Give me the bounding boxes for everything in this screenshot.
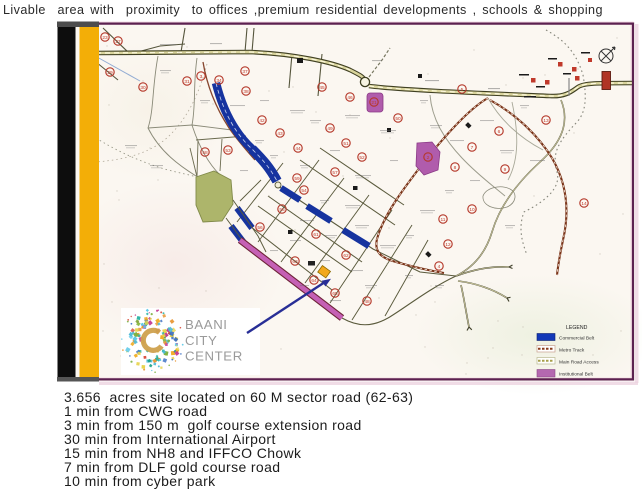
svg-text:45: 45 — [319, 85, 325, 91]
svg-text:Commercial Belt: Commercial Belt — [559, 336, 595, 342]
svg-text:2: 2 — [427, 155, 430, 161]
svg-text:14: 14 — [581, 201, 587, 207]
svg-text:12: 12 — [445, 242, 451, 248]
svg-text:8: 8 — [454, 165, 457, 171]
svg-text:62: 62 — [343, 253, 349, 259]
svg-text:34: 34 — [216, 78, 222, 84]
svg-text:Institutional Belt: Institutional Belt — [559, 372, 594, 378]
svg-text:37: 37 — [242, 69, 248, 75]
svg-text:CITY: CITY — [185, 333, 217, 348]
svg-text:21: 21 — [371, 100, 377, 106]
svg-text:42: 42 — [259, 118, 265, 124]
svg-text:5: 5 — [461, 87, 464, 93]
svg-text:63: 63 — [292, 259, 298, 265]
svg-text:7: 7 — [471, 145, 474, 151]
svg-text:43: 43 — [277, 131, 283, 137]
svg-text:44: 44 — [295, 146, 301, 152]
svg-text:6: 6 — [498, 129, 501, 135]
svg-text:29: 29 — [107, 70, 113, 76]
svg-text:23: 23 — [102, 35, 108, 41]
svg-text:CENTER: CENTER — [185, 349, 243, 364]
svg-text:49: 49 — [327, 126, 333, 132]
svg-text:3: 3 — [200, 74, 203, 80]
svg-text:52: 52 — [359, 155, 365, 161]
svg-text:9: 9 — [504, 167, 507, 173]
svg-text:64: 64 — [311, 278, 317, 284]
svg-text:30: 30 — [140, 85, 146, 91]
svg-text:BAANI: BAANI — [185, 317, 228, 332]
svg-text:13: 13 — [543, 118, 549, 124]
svg-text:57: 57 — [332, 170, 338, 176]
svg-text:58: 58 — [202, 150, 208, 156]
svg-text:51: 51 — [343, 141, 349, 147]
svg-text:Main Road Access: Main Road Access — [559, 360, 599, 366]
svg-text:10: 10 — [469, 207, 475, 213]
svg-text:11: 11 — [441, 217, 446, 223]
svg-text:4: 4 — [438, 264, 441, 270]
svg-text:31: 31 — [184, 79, 190, 85]
svg-text:53: 53 — [225, 148, 231, 154]
svg-text:27: 27 — [115, 39, 121, 45]
svg-text:38: 38 — [243, 89, 249, 95]
svg-text:LEGEND: LEGEND — [566, 325, 588, 331]
svg-text:65: 65 — [332, 291, 338, 297]
svg-text:48: 48 — [364, 299, 370, 305]
svg-text:55: 55 — [279, 207, 285, 213]
svg-text:56: 56 — [257, 225, 263, 231]
svg-text:50: 50 — [395, 116, 401, 122]
svg-text:61: 61 — [313, 232, 319, 238]
svg-text:54: 54 — [301, 188, 307, 194]
svg-text:46: 46 — [347, 95, 353, 101]
svg-text:59: 59 — [294, 176, 300, 182]
svg-text:Metro Track: Metro Track — [559, 348, 585, 354]
